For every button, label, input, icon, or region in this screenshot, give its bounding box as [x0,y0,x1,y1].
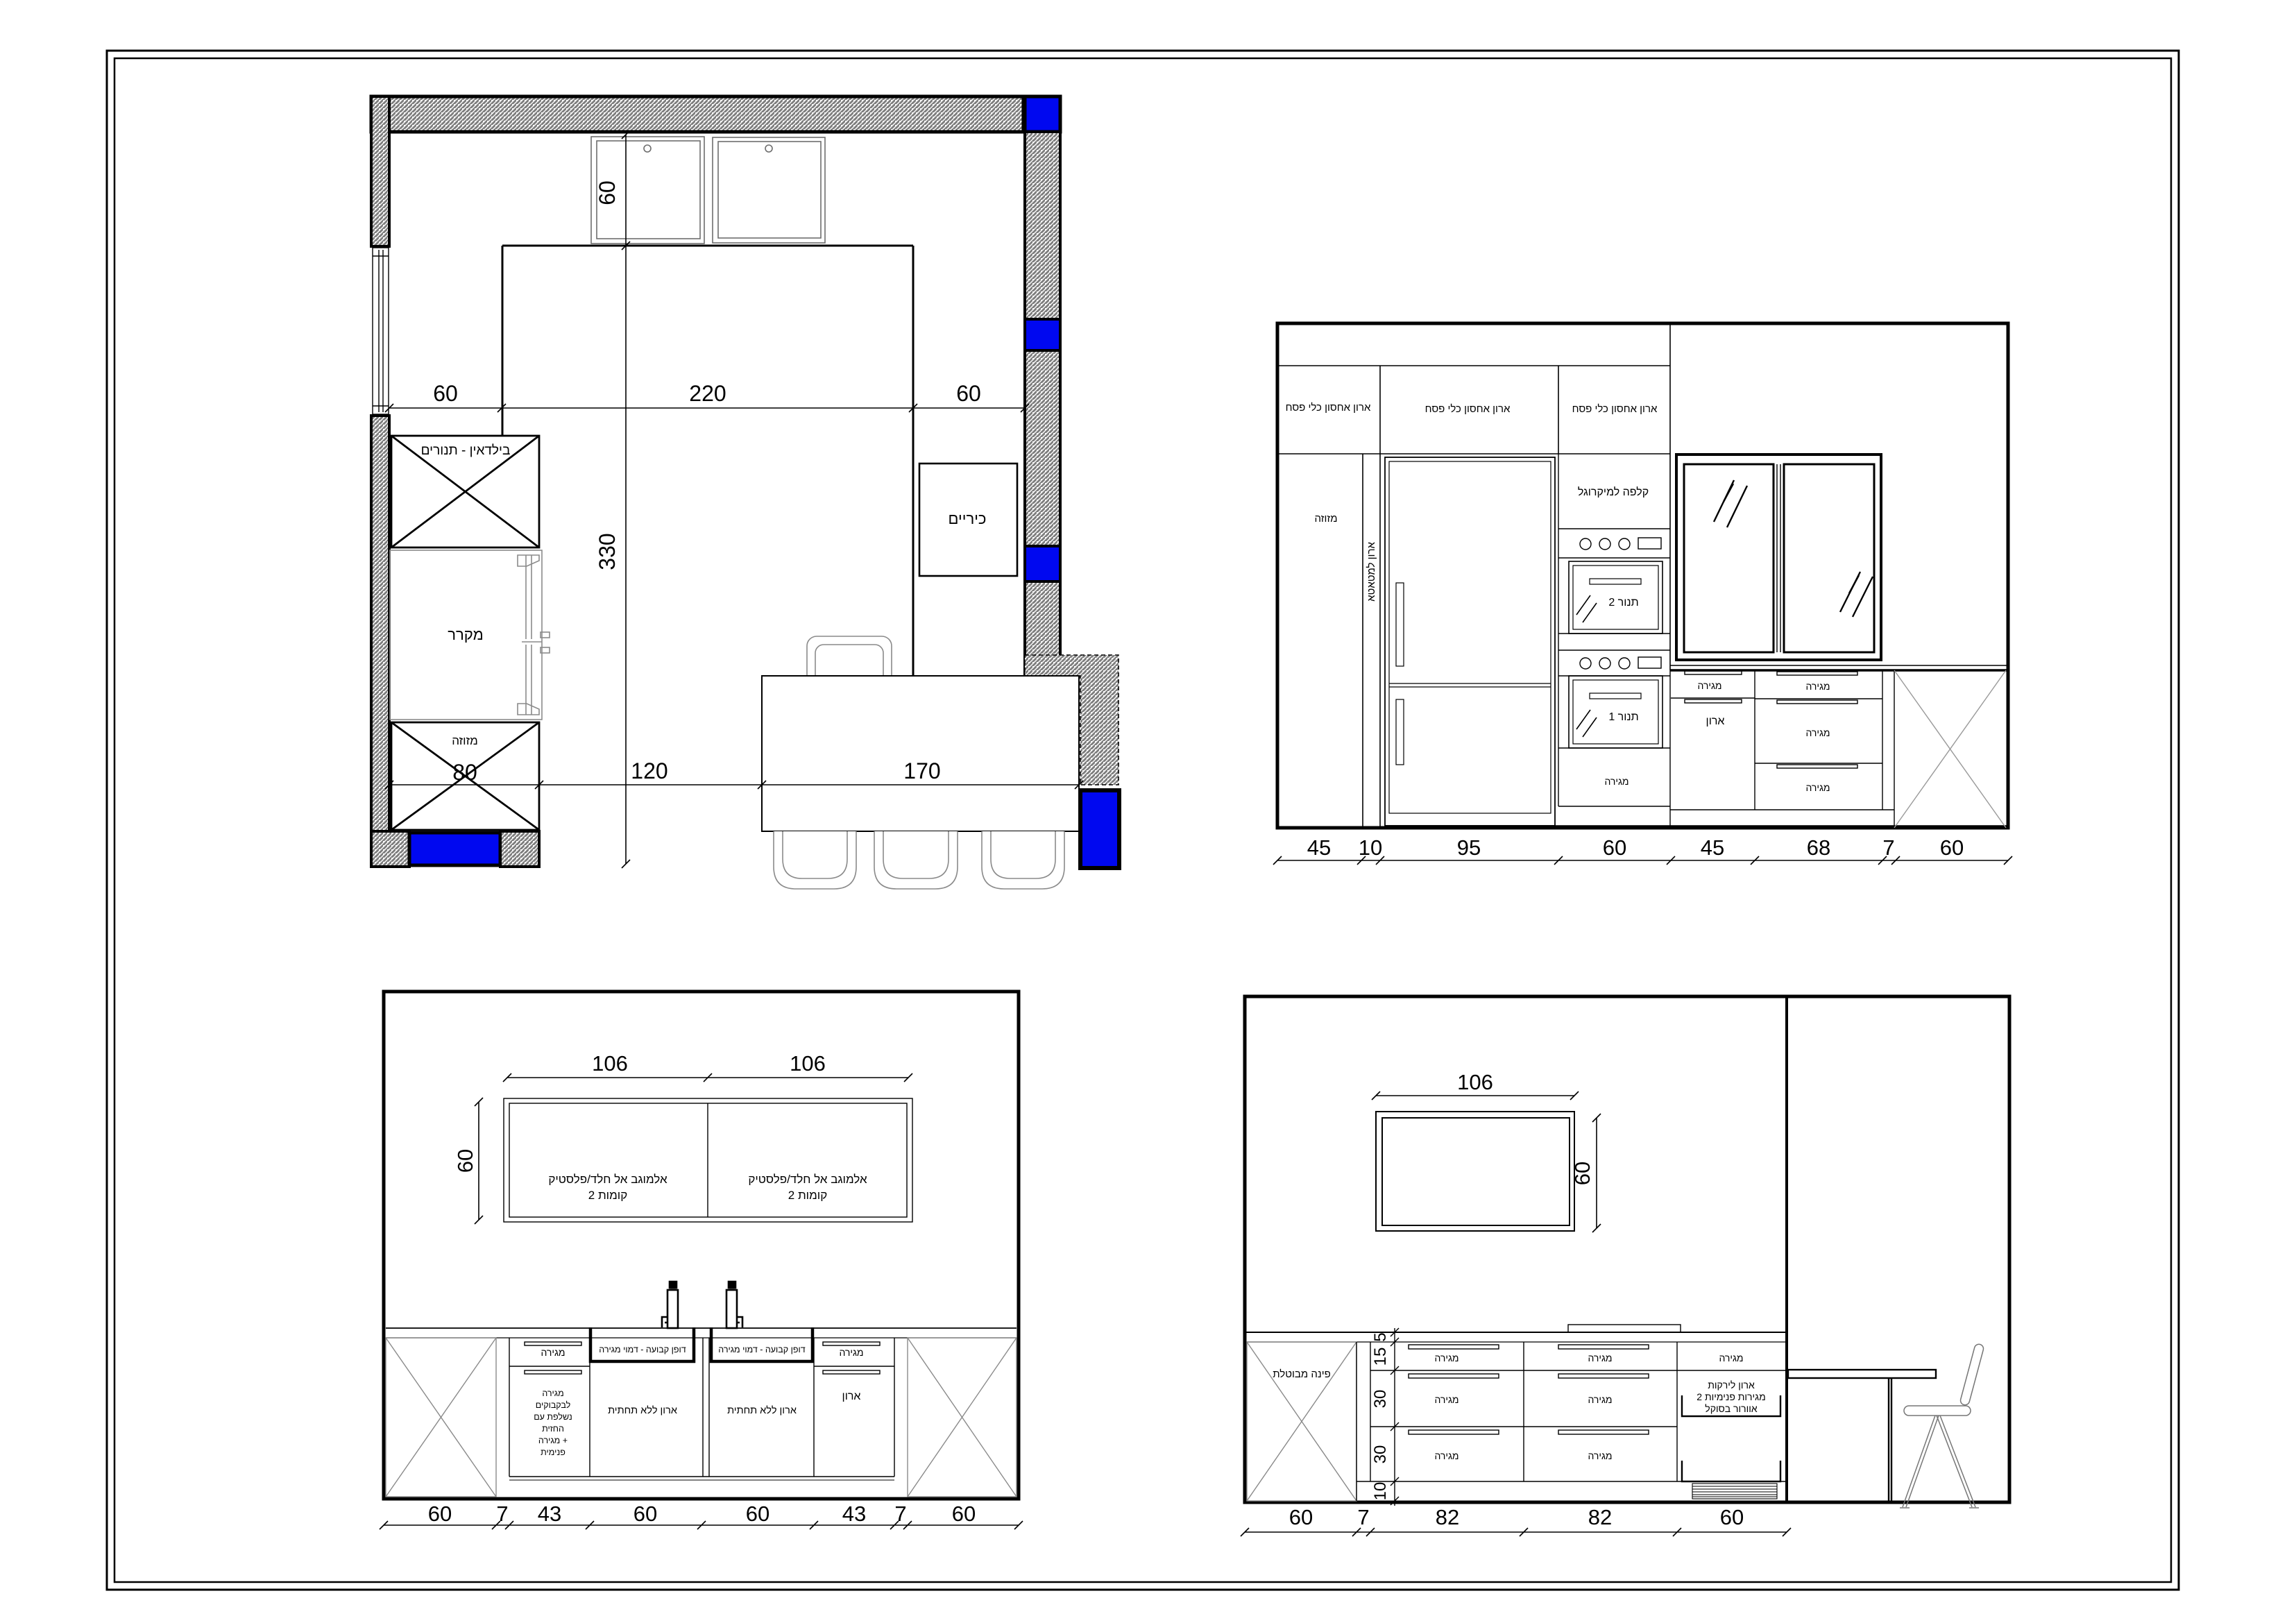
svg-text:10: 10 [1371,1482,1390,1501]
svg-text:תנור 2: תנור 2 [1608,597,1638,609]
svg-text:60: 60 [1603,835,1626,860]
svg-text:תנור 1: תנור 1 [1608,711,1638,723]
svg-text:מגירה: מגירה [1719,1352,1743,1363]
svg-text:60: 60 [1720,1505,1744,1529]
svg-text:15: 15 [1371,1348,1390,1366]
svg-text:ארון אחסון כלי פסח: ארון אחסון כלי פסח [1286,402,1371,414]
svg-text:מגירה: מגירה [1805,681,1830,692]
svg-text:60: 60 [1289,1505,1313,1529]
svg-text:מזוזה: מזוזה [1314,513,1337,525]
svg-text:פנימית: פנימית [541,1447,566,1457]
svg-text:60: 60 [595,180,620,205]
svg-text:מגירה: מגירה [1588,1352,1612,1363]
svg-text:95: 95 [1457,835,1481,860]
svg-text:אוורור בסוקל: אוורור בסוקל [1705,1403,1758,1414]
svg-text:82: 82 [1588,1505,1612,1529]
svg-text:בילדאין - תנורים: בילדאין - תנורים [421,443,511,458]
svg-text:43: 43 [842,1502,866,1526]
svg-text:7: 7 [894,1502,906,1526]
svg-text:60: 60 [633,1502,657,1526]
svg-text:2 קומות: 2 קומות [588,1189,627,1202]
svg-text:60: 60 [746,1502,769,1526]
svg-text:60: 60 [1940,835,1964,860]
svg-text:106: 106 [790,1051,826,1076]
svg-text:60: 60 [1570,1162,1595,1185]
svg-text:43: 43 [538,1502,561,1526]
svg-text:מגירה: מגירה [1805,782,1830,793]
svg-text:106: 106 [1457,1070,1493,1094]
svg-text:106: 106 [592,1051,628,1076]
svg-text:60: 60 [428,1502,452,1526]
svg-text:2 קומות: 2 קומות [788,1189,827,1202]
svg-text:מקרר: מקרר [448,626,483,643]
svg-text:מזוזה: מזוזה [452,734,478,747]
svg-text:דופן קבועה - דמוי מגירה: דופן קבועה - דמוי מגירה [599,1345,686,1354]
svg-text:30: 30 [1371,1445,1390,1464]
svg-text:45: 45 [1701,835,1724,860]
svg-text:ארון: ארון [1706,715,1725,727]
svg-text:נשלפת עם: נשלפת עם [534,1412,572,1422]
svg-text:170: 170 [903,758,940,783]
svg-text:60: 60 [952,1502,976,1526]
svg-text:אלמוגב אל חלד/פלסטיק: אלמוגב אל חלד/פלסטיק [748,1173,867,1186]
svg-text:45: 45 [1307,835,1331,860]
svg-text:5: 5 [1371,1332,1390,1341]
svg-text:ארון אחסון כלי פסח: ארון אחסון כלי פסח [1572,403,1658,415]
svg-text:כיריים: כיריים [949,510,987,527]
svg-text:7: 7 [1882,835,1894,860]
svg-text:10: 10 [1359,835,1382,860]
svg-text:מגירה +: מגירה + [538,1436,568,1445]
svg-text:ארון למטאטא: ארון למטאטא [1366,542,1377,602]
svg-text:ארון ללא תחתית: ארון ללא תחתית [608,1404,677,1416]
svg-text:מגירה: מגירה [1434,1352,1459,1363]
svg-text:ארון אחסון כלי פסח: ארון אחסון כלי פסח [1425,403,1511,415]
svg-text:מגירה: מגירה [542,1388,563,1398]
svg-text:החזית: החזית [542,1424,564,1434]
svg-text:82: 82 [1436,1505,1459,1529]
svg-text:ארון לירקות: ארון לירקות [1708,1379,1755,1391]
svg-text:60: 60 [956,381,981,406]
svg-text:30: 30 [1371,1390,1390,1409]
svg-text:60: 60 [433,381,458,406]
svg-text:120: 120 [631,758,667,783]
svg-text:2 מגירות פנימיות: 2 מגירות פנימיות [1697,1391,1765,1402]
svg-text:מגירה: מגירה [1434,1394,1459,1405]
svg-text:אלמוגב אל חלד/פלסטיק: אלמוגב אל חלד/פלסטיק [548,1173,667,1186]
svg-text:מגירה: מגירה [1604,776,1629,787]
svg-text:68: 68 [1807,835,1830,860]
svg-text:מגירה: מגירה [839,1347,863,1358]
svg-text:60: 60 [453,1149,477,1173]
svg-text:לבקבוקים: לבקבוקים [536,1400,571,1410]
svg-text:פינה מבוטלת: פינה מבוטלת [1273,1368,1331,1380]
svg-text:220: 220 [689,381,726,406]
svg-text:מגירה: מגירה [541,1347,565,1358]
svg-text:330: 330 [595,533,620,570]
svg-text:מגירה: מגירה [1588,1450,1612,1461]
svg-text:ארון: ארון [842,1391,861,1402]
svg-text:ארון ללא תחתית: ארון ללא תחתית [727,1404,797,1416]
svg-text:7: 7 [496,1502,508,1526]
svg-text:7: 7 [1357,1505,1369,1529]
svg-text:מגירה: מגירה [1805,727,1830,738]
svg-text:דופן קבועה - דמוי מגירה: דופן קבועה - דמוי מגירה [718,1345,805,1354]
svg-text:80: 80 [452,760,477,785]
svg-text:מגירה: מגירה [1697,680,1721,691]
svg-text:קלפה למיקרוגל: קלפה למיקרוגל [1578,486,1649,498]
svg-text:מגירה: מגירה [1434,1450,1459,1461]
svg-text:מגירה: מגירה [1588,1394,1612,1405]
